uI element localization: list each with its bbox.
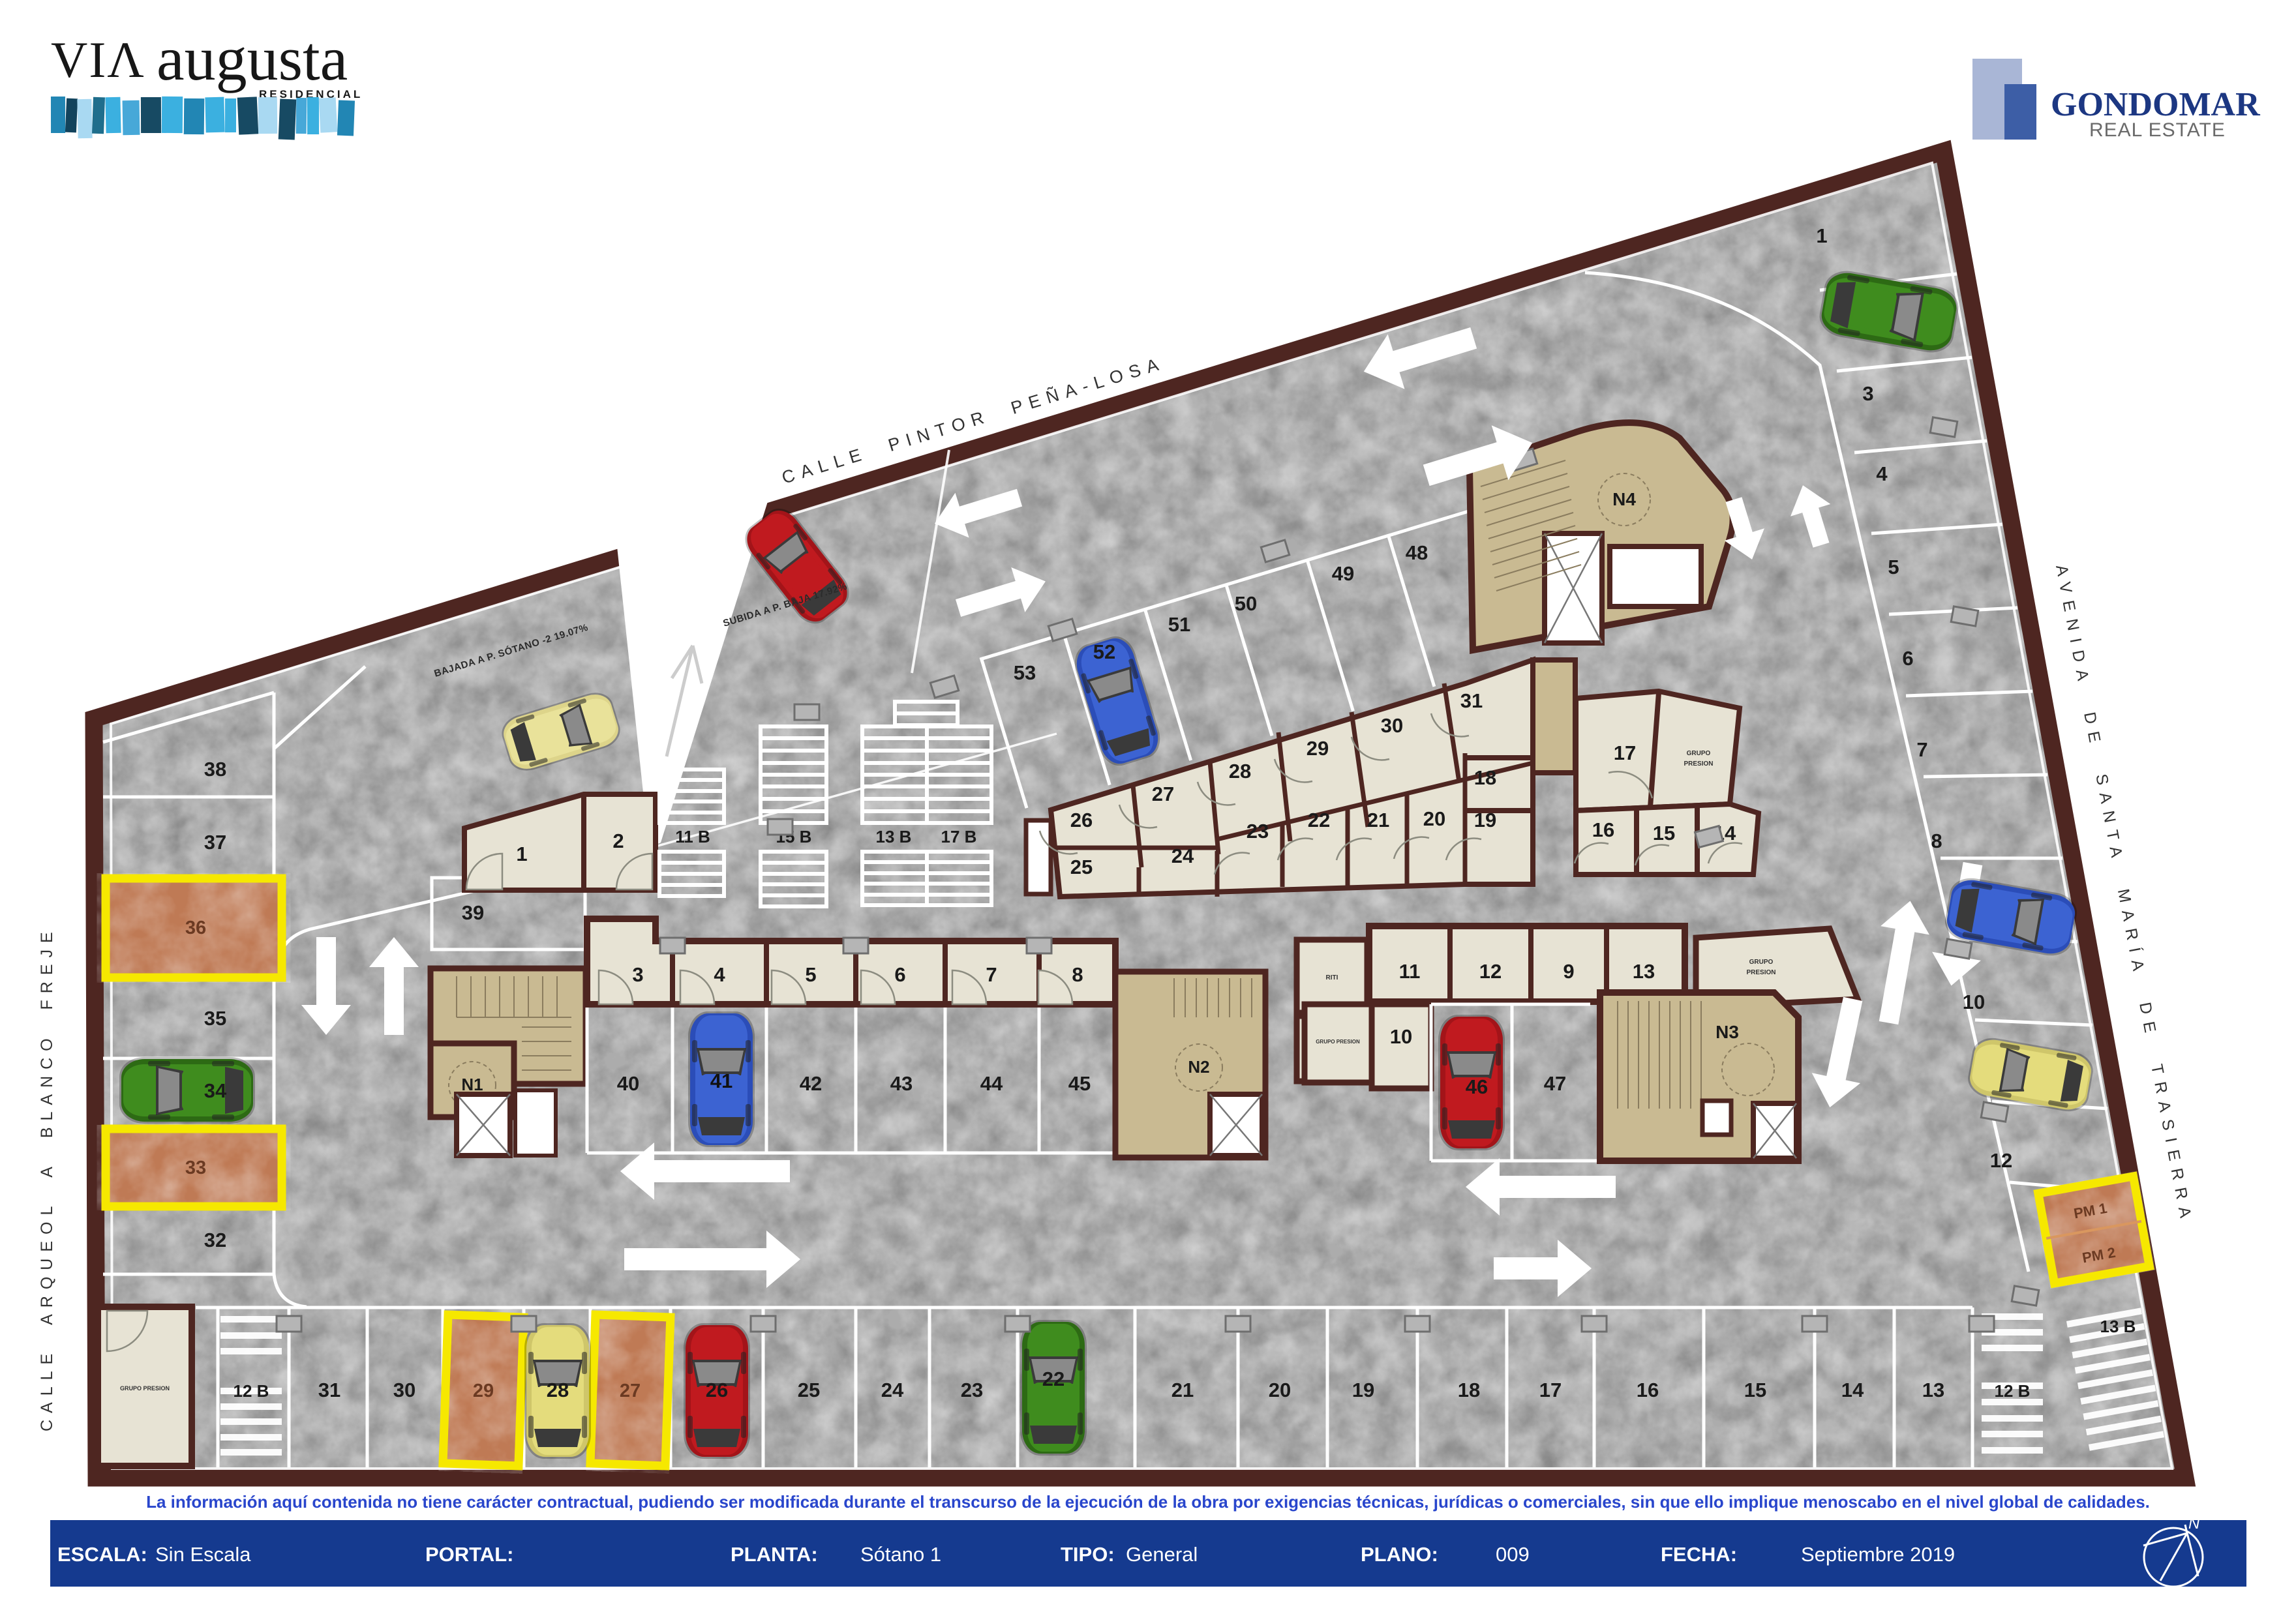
svg-text:34: 34: [204, 1079, 227, 1102]
svg-text:45: 45: [1068, 1072, 1091, 1095]
svg-text:19: 19: [1474, 809, 1496, 831]
svg-text:TIPO:: TIPO:: [1061, 1543, 1115, 1566]
svg-text:8: 8: [1931, 829, 1942, 852]
svg-text:27: 27: [620, 1381, 641, 1401]
svg-text:11: 11: [1399, 960, 1421, 983]
svg-text:N1: N1: [461, 1075, 483, 1094]
svg-text:10: 10: [1390, 1025, 1412, 1048]
svg-text:GRUPO: GRUPO: [1749, 959, 1774, 966]
svg-text:18: 18: [1474, 766, 1496, 789]
svg-text:1: 1: [516, 843, 527, 865]
svg-text:PRESION: PRESION: [1746, 969, 1775, 976]
svg-text:N2: N2: [1188, 1057, 1209, 1077]
svg-text:30: 30: [1381, 714, 1403, 737]
svg-text:15: 15: [1744, 1379, 1766, 1401]
svg-text:12 B: 12 B: [234, 1381, 269, 1401]
svg-text:N3: N3: [1715, 1022, 1739, 1042]
svg-text:6: 6: [894, 963, 905, 986]
svg-text:13 B: 13 B: [2100, 1317, 2136, 1336]
svg-text:4: 4: [1876, 462, 1888, 485]
svg-text:2: 2: [612, 829, 624, 852]
svg-text:ESCALA:: ESCALA:: [57, 1543, 147, 1566]
svg-text:GRUPO: GRUPO: [1687, 750, 1711, 757]
svg-text:5: 5: [805, 963, 816, 986]
svg-text:50: 50: [1235, 592, 1257, 615]
svg-text:N4: N4: [1612, 489, 1636, 509]
svg-text:17: 17: [1539, 1379, 1562, 1401]
svg-text:RITI: RITI: [1326, 974, 1338, 981]
svg-text:6: 6: [1902, 647, 1913, 670]
svg-text:N: N: [2188, 1515, 2200, 1532]
svg-text:FECHA:: FECHA:: [1661, 1543, 1737, 1566]
svg-text:10: 10: [1963, 991, 1985, 1013]
svg-text:17 B: 17 B: [941, 827, 977, 846]
svg-text:PRESION: PRESION: [1684, 760, 1713, 768]
svg-text:40: 40: [617, 1072, 639, 1095]
svg-text:39: 39: [462, 901, 484, 924]
svg-text:14: 14: [1841, 1379, 1864, 1401]
svg-text:7: 7: [1916, 738, 1927, 761]
svg-text:21: 21: [1367, 809, 1389, 831]
svg-text:9: 9: [1563, 960, 1574, 983]
svg-text:46: 46: [1466, 1075, 1488, 1098]
svg-text:1: 1: [1816, 224, 1827, 247]
svg-text:47: 47: [1544, 1072, 1566, 1095]
svg-text:24: 24: [1171, 844, 1194, 867]
svg-text:12: 12: [1990, 1149, 2012, 1172]
svg-text:20: 20: [1269, 1379, 1291, 1401]
svg-text:GONDOMAR: GONDOMAR: [2051, 86, 2261, 123]
svg-text:27: 27: [1152, 783, 1174, 805]
svg-text:Sótano 1: Sótano 1: [860, 1543, 941, 1566]
svg-text:PLANO:: PLANO:: [1361, 1543, 1438, 1566]
svg-text:13: 13: [1922, 1379, 1944, 1401]
svg-text:25: 25: [798, 1379, 820, 1401]
svg-text:26: 26: [706, 1379, 728, 1401]
svg-text:12: 12: [1479, 960, 1502, 983]
svg-text:28: 28: [1229, 760, 1251, 783]
svg-text:4: 4: [714, 963, 725, 986]
svg-text:30: 30: [393, 1379, 415, 1401]
svg-text:17: 17: [1614, 741, 1636, 764]
svg-text:General: General: [1126, 1543, 1198, 1566]
svg-text:Sin Escala: Sin Escala: [155, 1543, 251, 1566]
svg-text:43: 43: [890, 1072, 913, 1095]
svg-text:21: 21: [1171, 1379, 1194, 1401]
svg-text:8: 8: [1072, 963, 1083, 986]
svg-text:12 B: 12 B: [1995, 1381, 2031, 1401]
svg-text:42: 42: [800, 1072, 822, 1095]
svg-text:26: 26: [1070, 809, 1093, 831]
svg-text:37: 37: [204, 831, 226, 854]
svg-text:11 B: 11 B: [675, 827, 710, 846]
svg-text:CALLE ARQUEOL A BLANCO FRE: CALLE ARQUEOL A BLANCO FREJE: [38, 925, 56, 1431]
svg-text:53: 53: [1014, 661, 1036, 684]
svg-text:38: 38: [204, 758, 226, 781]
svg-text:20: 20: [1423, 807, 1445, 830]
svg-text:16: 16: [1637, 1379, 1659, 1401]
svg-text:3: 3: [632, 963, 643, 986]
svg-text:33: 33: [185, 1158, 206, 1178]
svg-text:7: 7: [986, 963, 997, 986]
svg-text:23: 23: [1246, 820, 1269, 843]
svg-text:41: 41: [710, 1069, 733, 1092]
svg-text:49: 49: [1332, 562, 1354, 585]
svg-text:GRUPO PRESION: GRUPO PRESION: [120, 1385, 170, 1392]
svg-text:16: 16: [1592, 818, 1614, 841]
svg-text:31: 31: [318, 1379, 340, 1401]
svg-text:22: 22: [1042, 1367, 1065, 1390]
svg-text:29: 29: [473, 1381, 494, 1401]
svg-text:PORTAL:: PORTAL:: [425, 1543, 513, 1566]
svg-text:La información aquí contenida: La información aquí contenida no tiene c…: [146, 1492, 2150, 1512]
svg-text:REAL ESTATE: REAL ESTATE: [2089, 119, 2226, 141]
svg-text:3: 3: [1862, 382, 1873, 405]
svg-text:28: 28: [547, 1379, 569, 1401]
svg-text:23: 23: [961, 1379, 983, 1401]
svg-text:31: 31: [1460, 689, 1483, 712]
svg-text:25: 25: [1070, 856, 1093, 878]
svg-text:52: 52: [1093, 640, 1115, 663]
svg-text:VIΛ: VIΛ: [51, 31, 145, 88]
svg-text:009: 009: [1496, 1543, 1530, 1566]
svg-text:18: 18: [1458, 1379, 1480, 1401]
svg-text:15: 15: [1653, 822, 1675, 844]
svg-text:36: 36: [185, 918, 206, 938]
svg-text:29: 29: [1307, 737, 1329, 760]
svg-text:5: 5: [1888, 556, 1899, 578]
svg-text:13 B: 13 B: [876, 827, 912, 846]
svg-text:48: 48: [1406, 541, 1428, 564]
svg-text:32: 32: [204, 1229, 226, 1251]
svg-text:PLANTA:: PLANTA:: [731, 1543, 818, 1566]
svg-text:44: 44: [980, 1072, 1003, 1095]
svg-text:13: 13: [1633, 960, 1655, 983]
svg-text:35: 35: [204, 1007, 226, 1030]
svg-text:GRUPO PRESION: GRUPO PRESION: [1316, 1039, 1360, 1045]
svg-text:51: 51: [1168, 613, 1190, 636]
svg-text:Septiembre 2019: Septiembre 2019: [1801, 1543, 1955, 1566]
svg-text:22: 22: [1308, 809, 1330, 831]
svg-text:augusta: augusta: [157, 23, 348, 93]
svg-text:24: 24: [881, 1379, 904, 1401]
svg-text:19: 19: [1352, 1379, 1374, 1401]
